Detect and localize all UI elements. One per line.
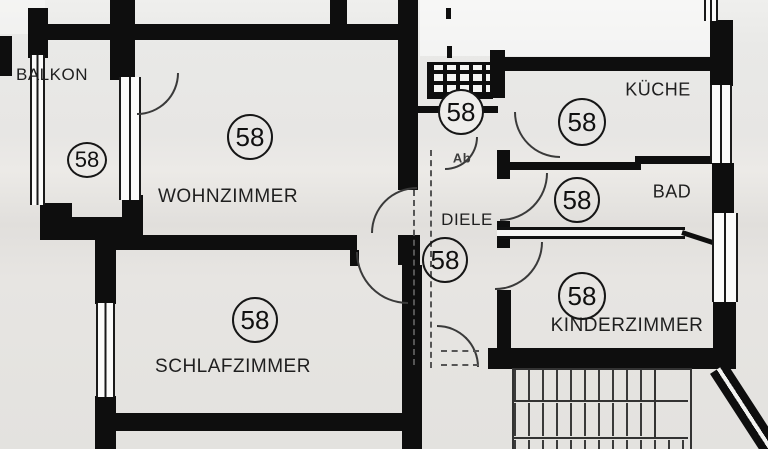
wall-kueche-bad-divider-right xyxy=(639,156,716,164)
wall-central-vertical xyxy=(398,0,418,190)
kueche-window xyxy=(710,85,732,163)
room-label-ab: Ab xyxy=(453,151,471,166)
unit-number-bad: 58 xyxy=(554,177,600,223)
staircase-divider-2 xyxy=(512,437,688,439)
wohnzimmer-door-arc xyxy=(371,187,417,233)
staircase-divider-1 xyxy=(512,400,688,402)
staircase-treads-run2 xyxy=(514,403,654,436)
wall-balcony-pier xyxy=(110,0,135,80)
unit-number-kueche: 58 xyxy=(558,98,606,146)
unit-number-balkon: 58 xyxy=(67,142,107,178)
room-label-kueche: KÜCHE xyxy=(625,80,691,101)
wall-tick-top xyxy=(446,8,451,19)
staircase-treads-run1 xyxy=(514,370,654,400)
room-label-balkon: BALKON xyxy=(16,65,88,85)
entry-door-arc xyxy=(437,325,479,367)
wall-balcony-corner-right xyxy=(122,195,143,240)
floor-plan: BALKON WOHNZIMMER SCHLAFZIMMER DIELE Ab … xyxy=(0,0,768,449)
kinderzimmer-window xyxy=(712,213,738,302)
kueche-door-arc xyxy=(514,112,560,158)
scan-light-area xyxy=(420,0,710,56)
bad-door-arc xyxy=(500,173,548,221)
entry-dashed-line-upper xyxy=(441,350,479,352)
room-label-schlafzimmer: SCHLAFZIMMER xyxy=(155,356,311,378)
wall-edge-left xyxy=(0,36,12,76)
wall-kueche-bad-divider xyxy=(497,162,639,170)
unit-number-diele: 58 xyxy=(422,237,468,283)
schlafzimmer-door-arc xyxy=(356,252,408,304)
room-label-bad: BAD xyxy=(653,182,692,203)
wall-stub-top-left xyxy=(28,8,48,58)
wall-exterior-left-upper xyxy=(95,240,116,304)
window-strip-top-right xyxy=(704,0,718,21)
kinderzimmer-door-arc xyxy=(495,242,543,290)
balcony-door-arc xyxy=(137,73,179,115)
room-label-wohnzimmer: WOHNZIMMER xyxy=(158,186,298,208)
unit-number-kinderzimmer: 58 xyxy=(558,272,606,320)
wall-kinderzimmer-bottom xyxy=(488,348,736,369)
wall-stub-top-center xyxy=(330,0,347,40)
staircase-treads-run3 xyxy=(514,440,684,449)
wall-balcony-corner-left xyxy=(40,203,72,240)
schlafzimmer-window xyxy=(96,303,115,397)
staircase-landing-line xyxy=(654,368,656,438)
unit-number-wohnzimmer: 58 xyxy=(227,114,273,160)
wall-schlafzimmer-bottom xyxy=(95,413,420,431)
wall-top-left xyxy=(45,24,418,40)
wall-kinderzimmer-left xyxy=(497,290,511,350)
wall-diagonal-bottom-right xyxy=(710,363,768,449)
wall-corner-top-right xyxy=(710,20,733,86)
unit-number-schlafzimmer: 58 xyxy=(232,297,278,343)
wall-bad-kinderzimmer-divider xyxy=(497,227,685,239)
diele-dashed-line-left xyxy=(413,190,415,365)
entry-dashed-line-lower xyxy=(441,364,479,366)
room-label-diele: DIELE xyxy=(441,210,493,230)
unit-number-shaft: 58 xyxy=(438,89,484,135)
wall-wohnzimmer-schlafzimmer xyxy=(116,235,357,250)
wall-kueche-top xyxy=(492,57,716,71)
wall-exterior-right-bad xyxy=(712,163,734,214)
wall-exterior-right-lower xyxy=(713,302,736,350)
wall-tick-shaft xyxy=(447,46,452,58)
